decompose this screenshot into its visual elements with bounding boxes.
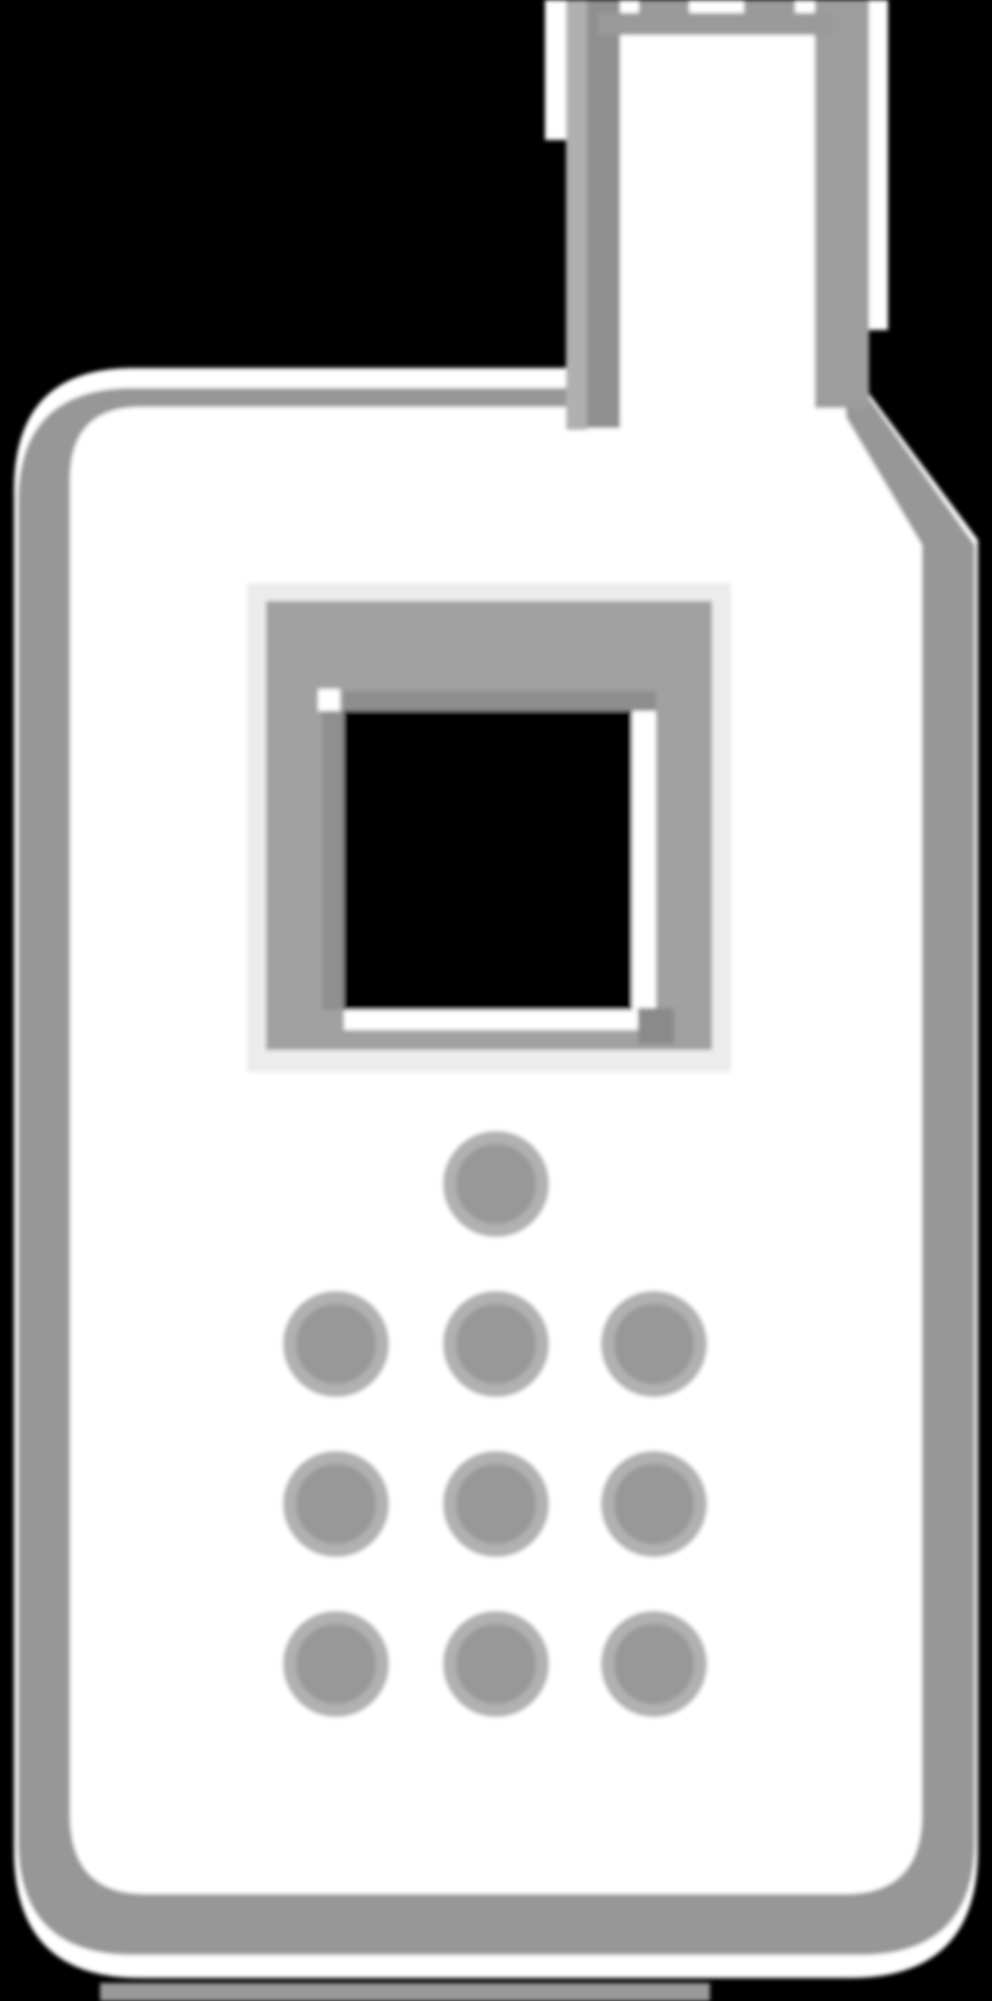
screen-corner-dark-block — [638, 1008, 674, 1044]
screen-black-display — [344, 711, 632, 1010]
bottom-edge-strip — [100, 1983, 710, 2001]
screen-inner-right-white-gap — [632, 711, 656, 1010]
antenna-top-noise-left — [639, 0, 689, 14]
screen-inner-left-dark-strip — [322, 711, 344, 1010]
keypad-dot — [614, 1304, 694, 1384]
phone-icon-image — [0, 0, 992, 2001]
keypad-dot — [296, 1304, 376, 1384]
antenna-top-bar — [598, 13, 832, 35]
keypad-dot — [614, 1624, 694, 1704]
antenna-left-stripe-dark — [587, 0, 620, 428]
antenna-left-stripe-light — [566, 0, 587, 430]
antenna — [545, 0, 888, 435]
keypad-dot — [456, 1624, 536, 1704]
keypad-dot — [296, 1624, 376, 1704]
screenshot-canvas — [0, 0, 992, 2001]
keypad-dot — [456, 1464, 536, 1544]
antenna-right-stripe — [815, 0, 869, 408]
screen-inner-top-dark-strip — [344, 691, 656, 711]
screen-white-notch — [318, 689, 340, 711]
keypad-dot — [296, 1464, 376, 1544]
antenna-top-noise-right — [744, 0, 795, 14]
screen — [247, 583, 731, 1072]
keypad-dot — [456, 1144, 536, 1224]
keypad-dot — [614, 1464, 694, 1544]
antenna-right-white-sliver — [869, 0, 888, 330]
antenna-left-white-sliver — [545, 0, 567, 140]
keypad-dot — [456, 1304, 536, 1384]
antenna-interior — [588, 0, 846, 435]
screen-inner-bottom-white-gap — [344, 1010, 656, 1030]
